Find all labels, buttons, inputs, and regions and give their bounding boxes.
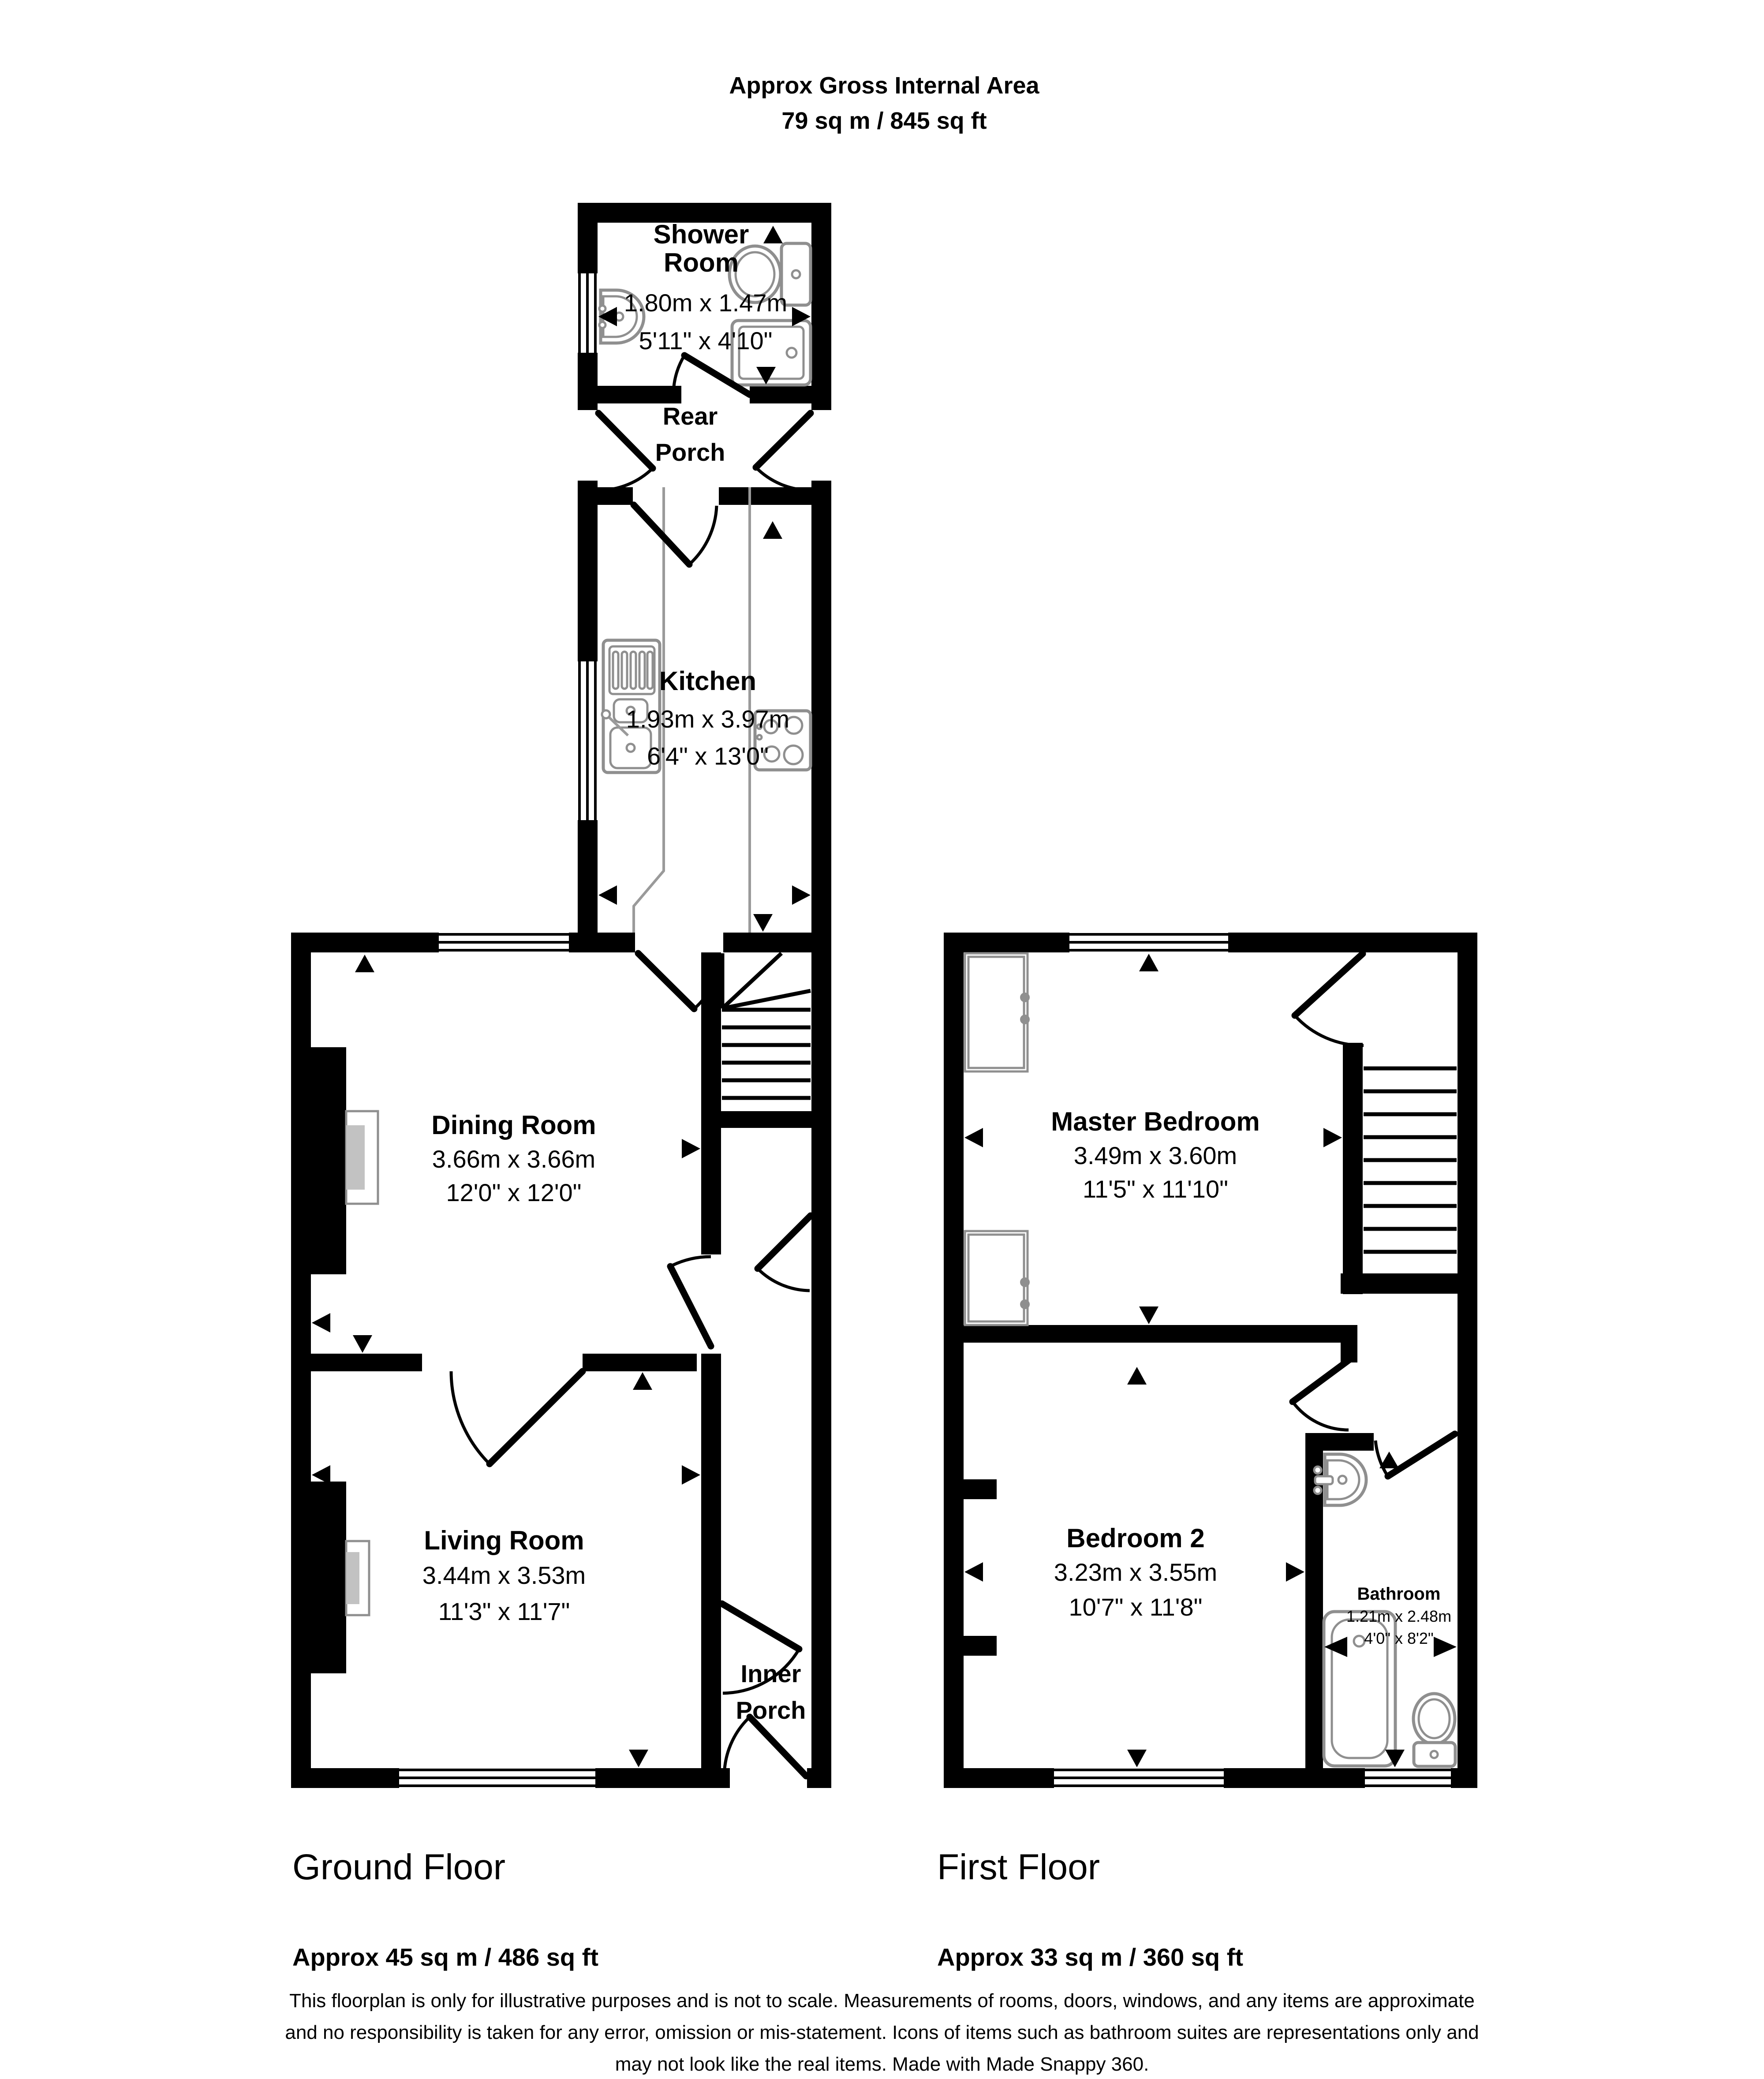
room-name: Bathroom [1357,1584,1441,1604]
inner-porch-label: Inner Porch [736,1660,806,1724]
measurement-arrow-icon [1139,1306,1159,1324]
room-dims-metric: 1.93m x 3.97m [626,705,789,733]
room-name: Master Bedroom [1051,1107,1259,1136]
room-name: Living Room [424,1526,584,1555]
room-dims-metric: 3.23m x 3.55m [1054,1558,1217,1586]
room-dims-metric: 1.21m x 2.48m [1346,1607,1451,1625]
ground-floor-caption: Ground Floor Approx 45 sq m / 486 sq ft [292,1847,598,1971]
wardrobe-icon [965,953,1030,1071]
room-dims-imperial: 4'0" x 8'2" [1364,1629,1433,1647]
gross-internal-area-title: Approx Gross Internal Area 79 sq m / 845… [729,72,1039,134]
measurement-arrow-icon [1139,954,1159,971]
toilet-icon [1413,1694,1455,1766]
measurement-arrow-icon [633,1372,652,1390]
measurement-arrow-icon [753,914,773,932]
measurement-arrow-icon [1434,1637,1457,1657]
first-floor-doors [1293,954,1455,1476]
room-name: Bedroom 2 [1066,1523,1204,1553]
dining-fireplace-icon [311,1047,378,1274]
room-dims-imperial: 12'0" x 12'0" [446,1179,581,1206]
window-icon [1054,1768,1224,1788]
disclaimer-line: and no responsibility is taken for any e… [285,2022,1479,2043]
first-floor-caption: First Floor Approx 33 sq m / 360 sq ft [937,1847,1243,1971]
window-icon [578,661,598,820]
window-icon [1069,933,1228,952]
disclaimer: This floorplan is only for illustrative … [285,1990,1479,2075]
measurement-arrow-icon [1127,1750,1147,1767]
stairs-icon [722,953,811,1098]
measurement-arrow-icon [355,955,374,972]
measurement-arrow-icon [312,1313,330,1333]
room-dims-imperial: 11'5" x 11'10" [1083,1175,1228,1203]
measurement-arrow-icon [1323,1128,1342,1147]
room-dims-metric: 3.66m x 3.66m [432,1145,595,1173]
bedroom-2-label: Bedroom 2 3.23m x 3.55m 10'7" x 11'8" [1054,1523,1217,1621]
floor-name: First Floor [937,1847,1100,1887]
measurement-arrow-icon [1286,1562,1304,1582]
window-icon [399,1768,595,1788]
first-floor-plan: Master Bedroom 3.49m x 3.60m 11'5" x 11'… [944,933,1477,1788]
room-name: Porch [655,438,725,466]
door-swing-icon [1295,954,1364,1045]
floorplan-canvas: Approx Gross Internal Area 79 sq m / 845… [0,0,1764,2079]
room-name: Shower [654,220,749,249]
measurement-arrow-icon [763,521,782,539]
room-dims-imperial: 6'4" x 13'0" [647,742,769,770]
measurement-arrow-icon [1379,1452,1399,1468]
title-line-2: 79 sq m / 845 sq ft [781,108,987,134]
room-dims-imperial: 10'7" x 11'8" [1069,1593,1203,1621]
living-fireplace-icon [311,1482,369,1673]
window-icon [439,933,569,952]
door-swing-icon [1293,1360,1349,1430]
disclaimer-line: may not look like the real items. Made w… [615,2053,1149,2075]
measurement-arrow-icon [629,1750,648,1767]
door-swing-icon [756,413,811,490]
ground-floor-windows [399,273,598,1788]
room-name: Inner [741,1660,801,1687]
measurement-arrow-icon [598,885,617,905]
floorplan-page: Approx Gross Internal Area 79 sq m / 845… [0,0,1764,2079]
stairs-icon [1364,1068,1457,1252]
living-room-label: Living Room 3.44m x 3.53m 11'3" x 11'7" [422,1526,586,1625]
measurement-arrow-icon [682,1139,700,1158]
measurement-arrow-icon [763,226,783,243]
rear-porch-label: Rear Porch [655,402,725,466]
room-dims-imperial: 11'3" x 11'7" [438,1598,570,1625]
window-icon [1365,1768,1451,1788]
room-dims-metric: 3.49m x 3.60m [1074,1142,1237,1169]
title-line-1: Approx Gross Internal Area [729,72,1039,99]
measurement-arrow-icon [1127,1367,1147,1385]
measurement-arrow-icon [964,1562,983,1582]
door-swing-icon [758,1216,811,1291]
door-swing-icon [670,1257,711,1346]
room-name: Room [664,248,739,277]
disclaimer-line: This floorplan is only for illustrative … [289,1990,1475,2012]
floor-area: Approx 33 sq m / 360 sq ft [937,1943,1243,1971]
room-name: Dining Room [431,1110,596,1140]
door-swing-icon [451,1371,583,1464]
door-swing-icon [598,413,653,490]
room-dims-metric: 1.80m x 1.47m [624,289,787,317]
wardrobe-icon [965,1231,1030,1325]
dining-room-label: Dining Room 3.66m x 3.66m 12'0" x 12'0" [431,1110,596,1206]
window-icon [578,273,598,353]
floor-name: Ground Floor [292,1847,505,1887]
measurement-arrow-icon [792,885,811,905]
room-name: Rear [663,402,718,430]
door-swing-icon [634,505,717,564]
measurement-arrow-icon [353,1335,372,1353]
room-dims-imperial: 5'11" x 4'10" [639,327,773,355]
measurement-arrow-icon [682,1465,700,1485]
floor-area: Approx 45 sq m / 486 sq ft [292,1943,598,1971]
measurement-arrow-icon [964,1128,983,1147]
room-name: Kitchen [659,666,756,696]
room-name: Porch [736,1696,806,1724]
room-dims-metric: 3.44m x 3.53m [422,1561,586,1589]
ground-floor-plan: Shower Room 1.80m x 1.47m 5'11" x 4'10" … [291,203,831,1788]
door-swing-icon [725,1717,806,1776]
master-bedroom-label: Master Bedroom 3.49m x 3.60m 11'5" x 11'… [1051,1107,1259,1203]
